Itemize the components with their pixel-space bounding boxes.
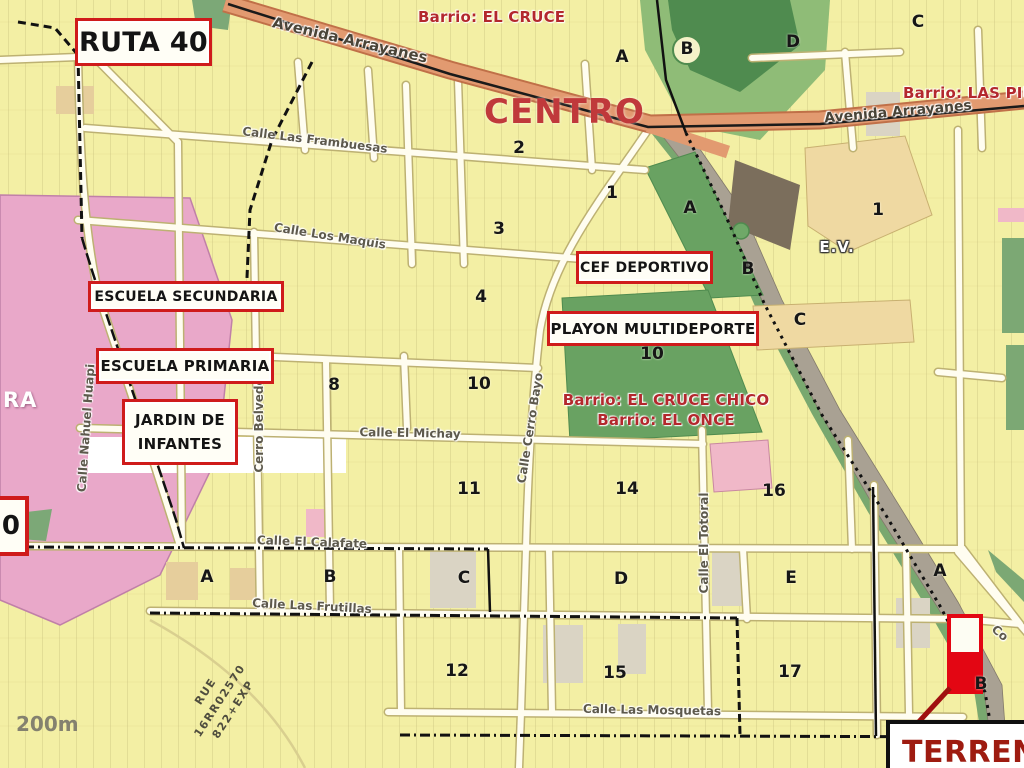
barrio-el-cruce-label: Barrio: EL CRUCE	[418, 8, 565, 26]
block-label: B	[681, 39, 694, 59]
barrio-las-piedritas-label: Barrio: LAS PIEDRITAS	[903, 84, 1024, 102]
barrio-el-cruce-chico-label: Barrio: EL CRUCE CHICO	[563, 391, 770, 409]
tan-parcel	[166, 562, 198, 600]
street-label: Calle Las Mosquetas	[583, 702, 721, 718]
playon-multideporte-label: PLAYON MULTIDEPORTE	[550, 320, 755, 338]
escuela-secundaria-label: ESCUELA SECUNDARIA	[94, 289, 277, 305]
block-label: 17	[778, 662, 802, 682]
block-label: 1	[872, 200, 884, 220]
block-label: A	[933, 561, 946, 581]
block-label: D	[614, 569, 628, 589]
street-label: Calle El Totoral	[697, 493, 711, 594]
pink-strip-right	[998, 208, 1024, 222]
centro-label: CENTRO	[484, 92, 645, 132]
block-label: E	[785, 568, 797, 588]
ruta-40-label: RUTA 40	[79, 27, 208, 58]
block-label: 2	[513, 138, 525, 158]
block-label: B	[742, 259, 755, 279]
block-label: E.V.	[819, 238, 854, 256]
escuela-secundaria-box: ESCUELA SECUNDARIA	[88, 281, 284, 312]
block-label: 10	[467, 374, 491, 394]
left-route-shield: 0	[0, 496, 29, 556]
terreno-callout: TERRENO	[886, 720, 1024, 768]
block-label: A	[615, 47, 628, 67]
green-strip-right	[1006, 345, 1024, 430]
block-label: 14	[615, 479, 639, 499]
cef-deportivo-label: CEF DEPORTIVO	[580, 260, 709, 276]
barrio-el-once-label: Barrio: EL ONCE	[597, 411, 735, 429]
playon-multideporte-box: PLAYON MULTIDEPORTE	[547, 311, 759, 346]
block-label: 3	[493, 219, 505, 239]
left-shield-label: 0	[2, 511, 20, 541]
block-label: C	[458, 568, 470, 588]
jardin-de-infantes-box: JARDIN DE INFANTES	[122, 399, 238, 465]
jardin-line2: INFANTES	[138, 432, 223, 456]
block-label: 11	[457, 479, 481, 499]
block-label: C	[912, 12, 924, 32]
block-label: A	[200, 567, 213, 587]
tan-band-c	[753, 300, 914, 350]
block-label: D	[786, 32, 800, 52]
terreno-label: TERRENO	[902, 735, 1024, 768]
street-label: Calle El Michay	[359, 425, 460, 441]
block-label: B	[975, 674, 988, 694]
block-label: 1	[606, 183, 618, 203]
scale-text: 200m	[16, 712, 79, 736]
escuela-primaria-label: ESCUELA PRIMARIA	[100, 357, 269, 375]
block-label: 15	[603, 663, 627, 683]
cef-deportivo-box: CEF DEPORTIVO	[576, 251, 713, 284]
green-strip-right	[1002, 238, 1024, 333]
block-label: A	[683, 198, 696, 218]
block-label: 12	[445, 661, 469, 681]
pink-zone-label: RA	[3, 388, 37, 412]
jardin-line1: JARDIN DE	[135, 408, 225, 432]
escuela-primaria-box: ESCUELA PRIMARIA	[96, 348, 274, 384]
block-label: B	[324, 567, 337, 587]
block-label: 8	[328, 375, 340, 395]
block-label: 10	[640, 344, 664, 364]
block-label: 16	[762, 481, 786, 501]
ruta-40-shield: RUTA 40	[75, 18, 212, 66]
block-label: C	[794, 310, 806, 330]
city-map: RUTA 40 0 ESCUELA SECUNDARIA ESCUELA PRI…	[0, 0, 1024, 768]
block-label: 4	[475, 287, 487, 307]
